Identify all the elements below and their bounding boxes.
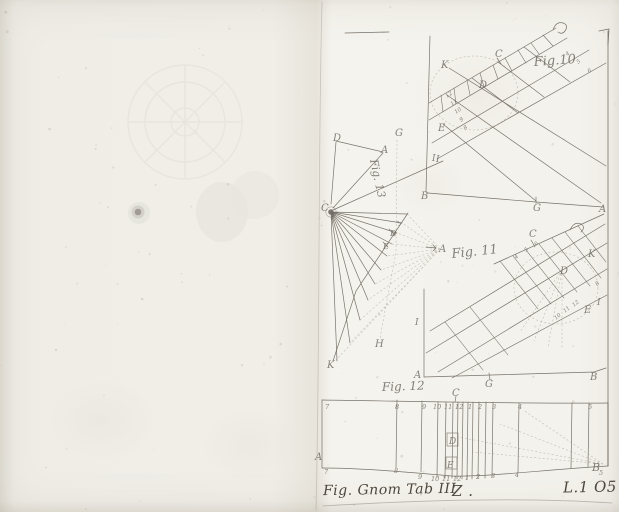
engraved-stroke — [263, 363, 264, 364]
fig11-label-t5: 5 — [523, 246, 530, 253]
engraved-stroke — [181, 281, 183, 283]
engraved-stroke — [428, 131, 430, 133]
fig13-label-C-hub: C — [321, 203, 329, 214]
fig13-label-A-right: A — [438, 244, 446, 255]
engraved-stroke — [55, 349, 57, 351]
engraved-stroke — [64, 324, 65, 325]
engraved-stroke — [572, 400, 575, 403]
engraved-stroke — [85, 508, 87, 510]
fig13-hub-blob — [328, 209, 334, 215]
engraved-stroke — [461, 264, 464, 267]
engraved-stroke — [603, 31, 605, 33]
engraved-stroke — [435, 352, 437, 354]
fig11-label-I-left: I — [414, 318, 419, 328]
engraved-stroke — [443, 509, 444, 510]
engraved-stroke — [149, 253, 151, 255]
fig12-label-bot-3: 3 — [491, 472, 495, 480]
engraved-stroke — [6, 30, 9, 33]
fig10-label-t8: 8 — [463, 124, 470, 131]
engraved-stroke — [65, 246, 67, 248]
fig13-labels: Fig. 13DAGICDEAHK34 — [321, 128, 446, 371]
engraved-stroke — [456, 282, 457, 283]
fig12-label-top-9: 9 — [422, 403, 426, 411]
fig10-label-B: B — [420, 191, 428, 202]
engraved-stroke — [491, 368, 492, 369]
fig12-hour-verticals — [396, 400, 589, 479]
fig11-label-t4: 4 — [513, 253, 521, 261]
engraved-stroke — [447, 280, 449, 282]
engraved-stroke — [105, 1, 106, 2]
fig11-label-t11: 11 — [562, 305, 571, 314]
engraved-stroke — [387, 39, 389, 41]
fig13-diagram: Fig. 13DAGICDEAHK34 — [321, 128, 446, 371]
engraved-stroke — [534, 325, 536, 327]
fig10-label-K: K — [440, 60, 449, 71]
engraved-stroke — [606, 42, 607, 43]
engraved-stroke — [321, 225, 323, 227]
fig13-label-H: H — [374, 339, 384, 350]
fig12-top-edge — [322, 400, 608, 403]
engraved-stroke — [318, 217, 321, 220]
engraved-stroke — [202, 54, 203, 55]
engraved-stroke — [181, 273, 182, 274]
engraved-stroke — [4, 11, 7, 14]
engraved-stroke — [458, 87, 459, 88]
plate-top-mark — [345, 32, 389, 33]
fig10-spiral — [553, 23, 567, 34]
engraved-stroke — [545, 15, 546, 16]
engraved-stroke — [532, 376, 534, 378]
fig12-label-top-7: 7 — [325, 403, 330, 411]
engraved-stroke — [231, 171, 279, 219]
engraved-stroke — [228, 27, 231, 30]
engraved-stroke — [313, 496, 315, 498]
engraved-stroke — [298, 89, 299, 90]
fig11-diagram: Fig. 11CKDEIIAGB4561011128 — [413, 214, 607, 390]
engraved-stroke — [249, 498, 251, 500]
engraved-stroke — [353, 504, 356, 507]
gutter-fold-line — [316, 2, 322, 510]
fig13-label-I: I — [435, 155, 440, 165]
engraved-stroke — [111, 127, 113, 129]
fig11-label-t10: 10 — [553, 312, 563, 321]
engraved-stroke — [107, 206, 109, 208]
fig11-label-title: Fig. 11 — [450, 242, 499, 262]
engraved-stroke — [263, 10, 264, 11]
engraved-stroke — [85, 67, 88, 70]
fig10-label-G: G — [533, 203, 541, 214]
engraved-stroke — [99, 202, 100, 203]
engraved-stroke — [506, 2, 508, 4]
fig12-label-top-11: 11 — [444, 403, 452, 411]
engraved-stroke — [286, 285, 288, 287]
engraved-stroke — [103, 385, 104, 386]
engraved-stroke — [401, 411, 403, 413]
fig10-diagram: Fig.10KCDEIBGA45612111098 — [420, 23, 606, 215]
engraved-stroke — [139, 500, 140, 501]
fig11-label-K: K — [587, 249, 596, 260]
engraved-stroke — [471, 368, 474, 371]
engraved-stroke — [241, 364, 243, 366]
engraved-stroke — [45, 466, 47, 468]
bleedthrough-ghost-wheel — [128, 65, 279, 242]
engraved-stroke — [377, 437, 379, 439]
engraved-stroke — [128, 202, 150, 224]
engraved-stroke — [141, 298, 144, 301]
fig11-label-C: C — [529, 229, 537, 240]
fig12-label-bot-9: 9 — [418, 473, 422, 481]
engraved-stroke — [479, 219, 481, 221]
engraved-stroke — [196, 132, 197, 133]
engraved-stroke — [472, 110, 473, 111]
ink-smudge-spot — [128, 202, 150, 224]
engraved-stroke — [572, 345, 575, 348]
engraved-stroke — [322, 207, 324, 209]
engraved-stroke — [411, 159, 413, 161]
fig12-label-top-10: 10 — [433, 403, 441, 411]
engraved-stroke — [199, 48, 200, 49]
engraved-stroke — [551, 143, 554, 146]
engraved-stroke — [112, 166, 114, 168]
fig12-label-title: Fig. 12 — [381, 379, 425, 395]
fig12-dotted-fan — [458, 410, 603, 464]
fig12-label-top-4: 4 — [517, 403, 522, 411]
fig11-label-t12: 12 — [571, 299, 581, 308]
engraved-plate-graphics: Fig.10KCDEIBGA45612111098 Fig. 11CKDEIIA… — [0, 0, 619, 512]
caption-signature: L.1 O5 — [563, 478, 617, 497]
engraved-stroke — [65, 447, 68, 450]
fig12-diagram: Fig. 12CDEAB7891011121234578910111212345 — [314, 379, 608, 483]
engraved-stroke — [155, 184, 157, 186]
engraved-stroke — [48, 128, 51, 131]
fig12-label-D: D — [448, 437, 456, 447]
engraved-stroke — [440, 261, 442, 263]
engraved-stroke — [614, 103, 617, 106]
fig13-label-E-mid: E — [382, 242, 389, 251]
engraved-stroke — [569, 247, 571, 249]
fig12-label-A: A — [314, 452, 322, 463]
fig10-label-t11: 11 — [450, 99, 459, 108]
engraved-stroke — [446, 432, 447, 433]
fig13-label-G: G — [395, 128, 403, 139]
engraved-stroke — [117, 323, 119, 325]
engraved-stroke — [472, 265, 473, 266]
engraved-stroke — [269, 356, 272, 359]
engraved-stroke — [376, 376, 379, 379]
engraved-stroke — [327, 464, 328, 465]
fig12-labels: Fig. 12CDEAB7891011121234578910111212345 — [314, 379, 603, 483]
fig10-label-A: A — [598, 204, 606, 215]
fig10-baseline — [428, 193, 603, 207]
fig10-label-E: E — [437, 123, 446, 134]
engraved-stroke — [448, 317, 450, 319]
engraved-stroke — [323, 200, 326, 203]
fig12-label-top-1: 1 — [468, 403, 472, 411]
engraved-stroke — [105, 265, 106, 266]
fig12-label-top-3: 3 — [492, 403, 496, 411]
engraved-stroke — [389, 6, 391, 8]
fig11-label-D: D — [559, 266, 568, 277]
fig11-label-G: G — [485, 379, 493, 390]
engraved-stroke — [138, 251, 139, 252]
engraved-stroke — [379, 314, 381, 316]
fig12-label-bot-2: 2 — [475, 473, 480, 481]
fig12-label-bot-5: 5 — [599, 469, 603, 477]
engraved-stroke — [494, 270, 497, 273]
engraved-stroke — [347, 149, 349, 151]
engraved-stroke — [512, 20, 513, 21]
engraved-stroke — [117, 283, 119, 285]
engraved-stroke — [103, 395, 104, 396]
fig13-label-title: Fig. 13 — [367, 157, 388, 199]
paper-speckles — [0, 1, 619, 510]
engraved-stroke — [153, 449, 154, 450]
fig13-label-K: K — [326, 360, 335, 371]
fig12-label-C: C — [452, 388, 460, 399]
engraved-stroke — [423, 471, 425, 473]
engraved-stroke — [279, 343, 282, 346]
fig11-baseline — [424, 368, 606, 377]
fig12-label-top-8: 8 — [395, 403, 399, 411]
engraved-stroke — [400, 455, 403, 458]
fig11-label-I-right: I — [596, 298, 601, 308]
fig10-label-t5: 5 — [576, 58, 583, 65]
engraved-stroke — [589, 78, 590, 79]
engraved-stroke — [488, 353, 489, 354]
caption-figure-line: Fig. Gnom Tab III — [323, 481, 457, 499]
engraved-stroke — [515, 18, 516, 19]
engraved-stroke — [95, 144, 97, 146]
fig10-label-t10: 10 — [454, 106, 464, 115]
engraved-stroke — [355, 397, 357, 399]
fig10-rails — [429, 28, 606, 159]
fig11-label-E: E — [583, 305, 592, 316]
engraved-stroke — [563, 138, 565, 140]
fig10-label-t9: 9 — [459, 116, 466, 123]
fig13-label-A-top: A — [380, 145, 388, 156]
fig11-label-t8: 8 — [594, 280, 601, 287]
fig13-label-D-top: D — [332, 133, 341, 144]
engraved-stroke — [0, 365, 1, 366]
engraved-stroke — [190, 205, 192, 207]
fig12-label-top-2: 2 — [477, 403, 482, 411]
engraved-stroke — [406, 82, 408, 84]
engraved-stroke — [342, 373, 343, 374]
engraved-stroke — [227, 218, 229, 220]
engraved-stroke — [95, 148, 97, 150]
fig12-label-bot-7: 7 — [324, 468, 329, 476]
fig10-label-D: D — [478, 80, 487, 91]
fig12-label-top-12: 12 — [455, 403, 463, 411]
engraved-stroke — [509, 442, 512, 445]
caption-center-mark: Z . — [452, 482, 473, 500]
scanned-book-opening: Fig.10KCDEIBGA45612111098 Fig. 11CKDEIIA… — [0, 0, 619, 512]
fig11-label-B: B — [589, 372, 597, 383]
engraved-stroke — [227, 183, 230, 186]
engraved-stroke — [514, 247, 515, 248]
engraved-stroke — [76, 283, 78, 285]
fig12-label-bot-4: 4 — [514, 471, 519, 479]
fig12-label-top-5: 5 — [588, 403, 592, 411]
engraved-stroke — [128, 65, 242, 179]
fig12-label-bot-8: 8 — [394, 467, 398, 475]
fig11-rails — [426, 214, 607, 378]
engraved-stroke — [417, 320, 418, 321]
fig12-label-bot-1: 1 — [465, 474, 469, 482]
fig13-label-tick-3: 3 — [395, 220, 403, 228]
fig12-label-E: E — [446, 461, 454, 471]
caption-underline — [323, 500, 612, 506]
engraved-stroke — [209, 274, 210, 275]
fig10-label-C: C — [495, 49, 503, 60]
engraved-stroke — [344, 421, 346, 423]
fig10-label-t12: 12 — [445, 90, 455, 99]
engraved-stroke — [405, 470, 406, 471]
engraved-stroke — [58, 77, 59, 78]
